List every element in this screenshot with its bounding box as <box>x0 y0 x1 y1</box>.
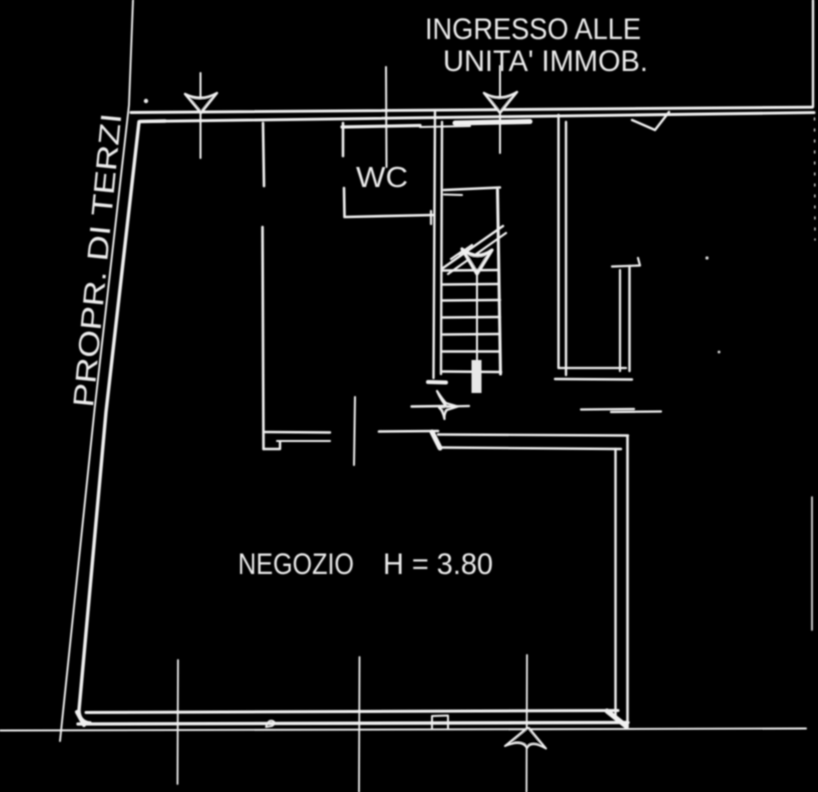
svg-text:H = 3.80: H = 3.80 <box>383 548 493 581</box>
svg-text:INGRESSO ALLE: INGRESSO ALLE <box>425 13 641 46</box>
svg-text:WC: WC <box>356 162 408 194</box>
svg-text:UNITA' IMMOB.: UNITA' IMMOB. <box>443 45 648 78</box>
svg-text:NEGOZIO: NEGOZIO <box>238 548 354 581</box>
